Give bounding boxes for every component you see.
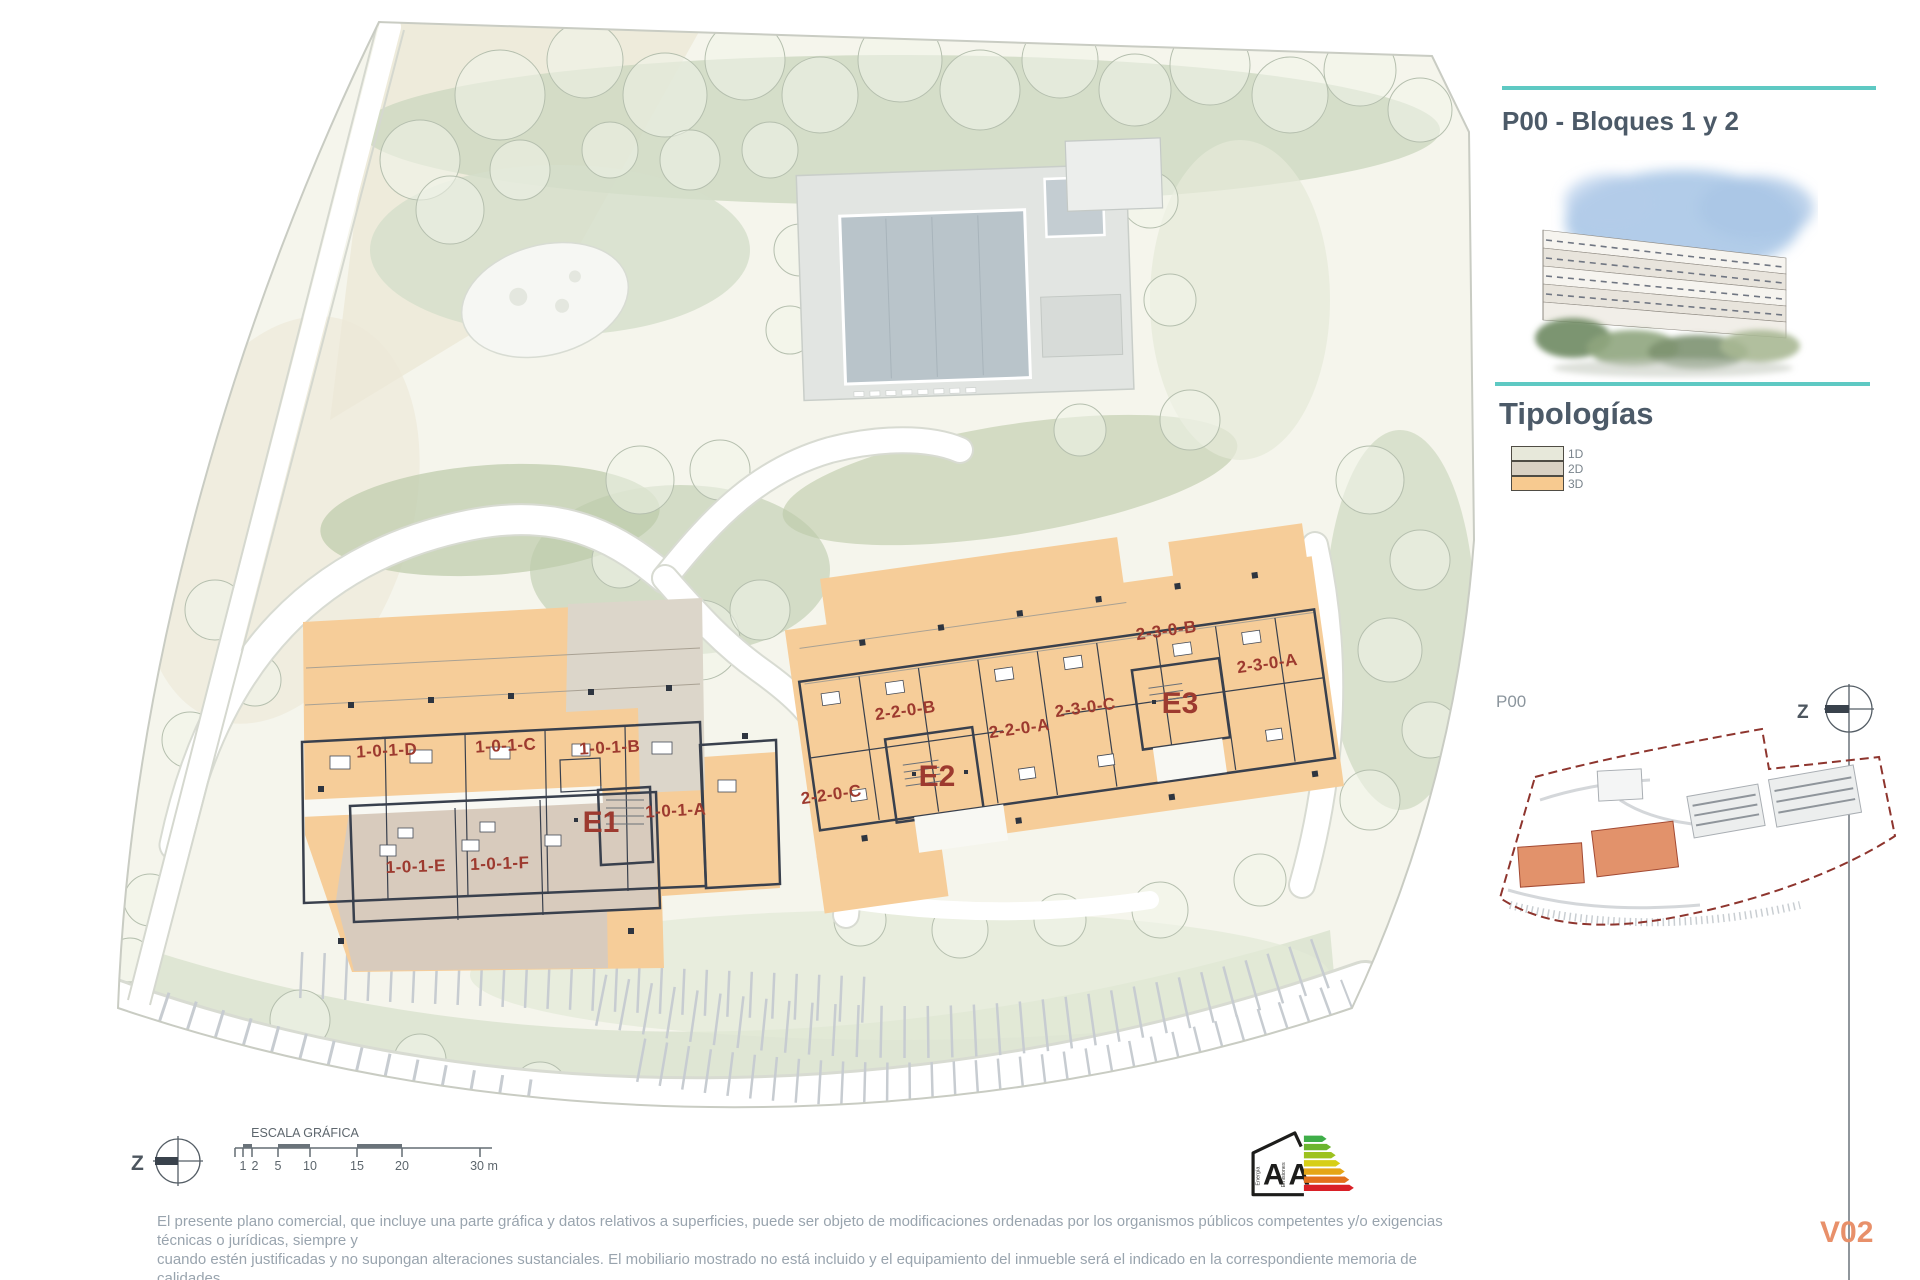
emissions-text: Emisiones xyxy=(1281,1162,1287,1187)
keyplan-label: P00 xyxy=(1496,692,1526,711)
compass-pointer xyxy=(155,1157,178,1165)
scale-tick-5: 5 xyxy=(275,1159,282,1173)
scale-bar: ESCALA GRÁFICA 1 2 5 10 15 20 30 m xyxy=(235,1125,498,1173)
page-title: P00 - Bloques 1 y 2 xyxy=(1502,106,1739,137)
scale-tick-20: 20 xyxy=(395,1159,409,1173)
legend-swatch-3d xyxy=(1511,476,1564,491)
legend-swatch-1d xyxy=(1511,446,1564,461)
unit-label-1-0-1-c: 1-0-1-C xyxy=(475,734,537,756)
typologies-heading: Tipologías xyxy=(1499,396,1653,432)
keyplan-minimap: P00 Z xyxy=(1496,684,1895,1280)
scale-tick-15: 15 xyxy=(350,1159,364,1173)
energy-text: Energía xyxy=(1255,1166,1261,1186)
unit-label-1-0-1-d: 1-0-1-D xyxy=(356,739,418,761)
unit-label-1-0-1-a: 1-0-1-A xyxy=(645,799,707,821)
legend-row-3d: 3D xyxy=(1511,477,1583,492)
legend-row-2d: 2D xyxy=(1511,462,1583,477)
legend-label-3d: 3D xyxy=(1568,477,1583,492)
legal-disclaimer: El presente plano comercial, que incluye… xyxy=(157,1212,1457,1280)
scale-tick-10: 10 xyxy=(303,1159,317,1173)
north-compass: Z xyxy=(131,1136,203,1186)
keyplan-compass-pointer xyxy=(1825,705,1849,713)
core-label-e2: E2 xyxy=(919,760,956,793)
teal-rule-top xyxy=(1502,86,1876,90)
legend-label-2d: 2D xyxy=(1568,462,1583,477)
legend-swatch-2d xyxy=(1511,461,1564,476)
scale-tick-2: 2 xyxy=(252,1159,259,1173)
keyplan-compass-letter: Z xyxy=(1797,702,1809,723)
compass-letter: Z xyxy=(131,1152,144,1175)
pool-area xyxy=(795,138,1169,401)
teal-rule-bottom xyxy=(1495,382,1870,386)
energy-rating-bars xyxy=(1304,1136,1354,1191)
core-label-e1: E1 xyxy=(583,806,620,839)
scale-tick-1: 1 xyxy=(240,1159,247,1173)
plan-sheet-page: 1-0-1-D 1-0-1-C 1-0-1-B 1-0-1-A 1-0-1-E … xyxy=(0,0,1920,1280)
legend-label-1d: 1D xyxy=(1568,447,1583,462)
typology-legend: 1D 2D 3D xyxy=(1511,447,1583,492)
scale-bar-title: ESCALA GRÁFICA xyxy=(251,1125,359,1140)
unit-label-1-0-1-b: 1-0-1-B xyxy=(579,736,641,758)
disclaimer-line-2: cuando estén justificadas y no supongan … xyxy=(157,1250,1457,1280)
unit-label-1-0-1-e: 1-0-1-E xyxy=(385,856,446,877)
site-content xyxy=(91,18,1475,1148)
core-label-e3: E3 xyxy=(1162,687,1199,720)
disclaimer-line-1: El presente plano comercial, que incluye… xyxy=(157,1212,1457,1250)
keyplan-buildings-highlighted xyxy=(1518,821,1679,887)
scale-tick-30m: 30 m xyxy=(470,1159,498,1173)
building-rendering xyxy=(1528,160,1818,385)
legend-row-1d: 1D xyxy=(1511,447,1583,462)
unit-label-1-0-1-f: 1-0-1-F xyxy=(470,853,530,874)
version-label: V02 xyxy=(1820,1216,1873,1250)
energy-certificate-logo: Energía A Emisiones A xyxy=(1244,1122,1362,1202)
